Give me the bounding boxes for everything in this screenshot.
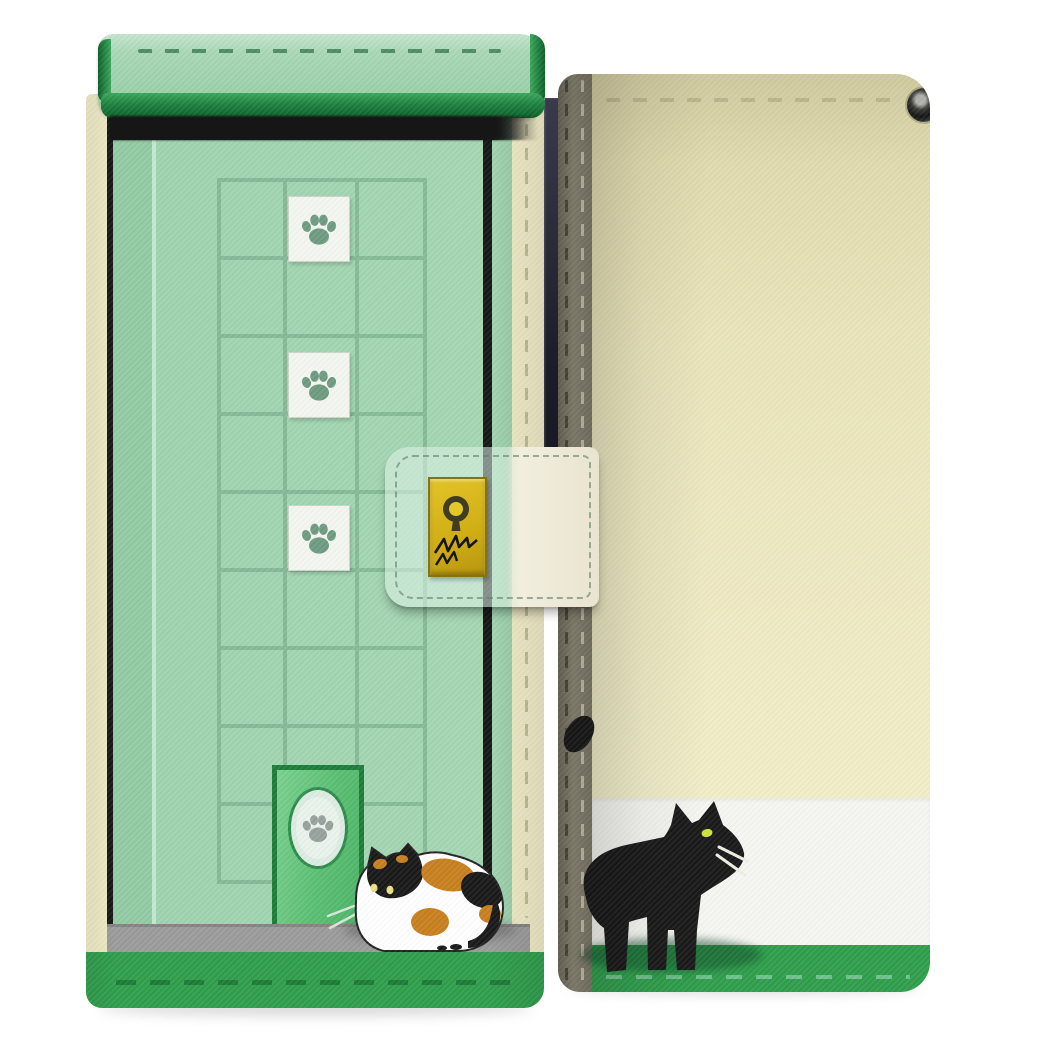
calico-orange-patch: [411, 908, 449, 936]
case-back-view: [558, 74, 930, 992]
keyhole-center: [449, 502, 463, 516]
flap-shadow: [110, 116, 538, 140]
paw-print-icon: [299, 209, 339, 249]
paw-tile: [288, 352, 350, 418]
calico-orange-patch: [396, 855, 408, 863]
front-stripe-stitching: [116, 980, 514, 985]
flap-stitching: [138, 49, 501, 53]
calico-whiskers: [328, 906, 356, 928]
black-cat-body: [584, 801, 745, 972]
calico-toe-mark: [437, 946, 447, 951]
claw-scratch-marks: [435, 536, 477, 553]
lock-detail: [430, 479, 485, 575]
calico-cat-illustration: [326, 842, 510, 962]
paw-tile: [288, 505, 350, 571]
flap-bottom-trim: [101, 93, 545, 118]
paw-print-icon: [299, 365, 339, 405]
product-photo: [0, 0, 1060, 1060]
claw-scratch-marks: [436, 552, 457, 565]
paw-tile: [288, 196, 350, 262]
calico-eye: [371, 884, 378, 892]
calico-eye: [387, 886, 394, 894]
back-top-stitching: [606, 98, 902, 102]
door-frame: [113, 116, 154, 924]
calico-toe-mark: [450, 944, 462, 950]
camera-eyelet: [907, 88, 930, 122]
paw-print-icon: [300, 810, 336, 846]
paw-print-icon: [299, 518, 339, 558]
lock-plate: [428, 477, 487, 577]
front-flap: [98, 34, 545, 118]
door-frame-highlight: [152, 116, 156, 924]
clasp-strap: [385, 447, 599, 607]
black-cat-illustration: [578, 798, 750, 980]
